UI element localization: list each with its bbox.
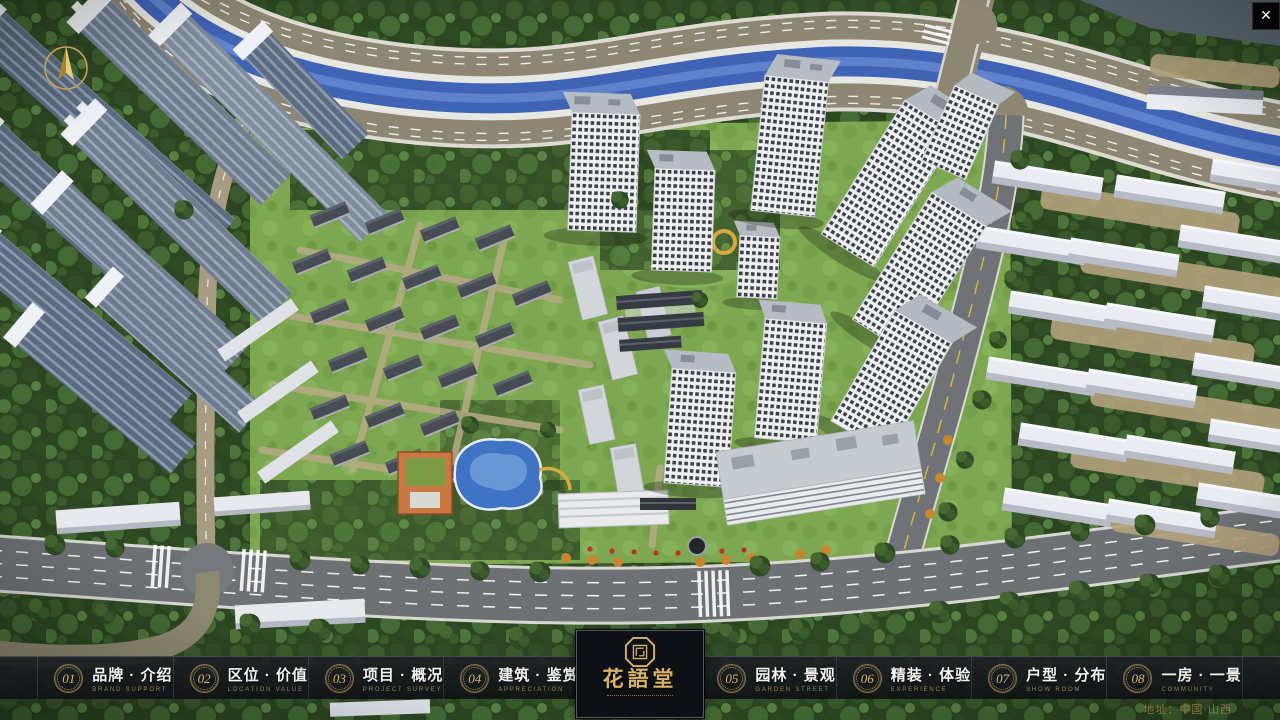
menu-item-project[interactable]: 03 项目 · 概况 PROJECT SURVEY [309, 657, 444, 699]
menu-number-badge: 07 [988, 664, 1017, 693]
logo-seal-icon [624, 636, 656, 668]
menu-item-location[interactable]: 02 区位 · 价值 LOCATION VALUE [174, 657, 309, 699]
menu-item-floorplan[interactable]: 07 户型 · 分布 SHOW ROOM [972, 657, 1107, 699]
menu-number-badge: 01 [54, 664, 83, 693]
menu-label-en: BRAND SUPPORT [92, 687, 172, 693]
menu-number-badge: 02 [190, 664, 219, 693]
sales-presentation-app: ✕ 01 品牌 · 介绍 BRAND SUPPORT 02 区位 · 价值 LO… [0, 0, 1280, 720]
vignette [0, 0, 1280, 720]
menu-label-en: SHOW ROOM [1026, 687, 1106, 693]
menu-label-zh: 项目 · 概况 [363, 664, 443, 685]
menu-item-architecture[interactable]: 04 建筑 · 鉴赏 APPRECIATION [444, 657, 578, 699]
menu-item-interior[interactable]: 06 精装 · 体验 EXPERIENCE [837, 657, 972, 699]
menu-number-badge: 06 [853, 664, 882, 693]
menu-label-en: GARDEN STREET [755, 687, 835, 693]
menu-label-en: LOCATION VALUE [228, 687, 308, 693]
close-button[interactable]: ✕ [1252, 2, 1280, 30]
menu-number-badge: 08 [1123, 664, 1152, 693]
logo-tagline-rule [607, 695, 673, 696]
menu-number-badge: 03 [325, 664, 354, 693]
menu-label-zh: 建筑 · 鉴赏 [498, 664, 578, 685]
menu-label-zh: 园林 · 景观 [755, 664, 835, 685]
menu-item-brand[interactable]: 01 品牌 · 介绍 BRAND SUPPORT [38, 657, 173, 699]
menu-label-en: PROJECT SURVEY [363, 687, 443, 693]
menu-item-views[interactable]: 08 一房 · 一景 COMMUNITY [1107, 657, 1241, 699]
menu-label-zh: 一房 · 一景 [1161, 664, 1241, 685]
menu-label-zh: 精装 · 体验 [891, 664, 971, 685]
bar-spacer-right [1242, 657, 1280, 699]
compass-north-icon [40, 40, 92, 92]
project-name: 花語堂 [603, 668, 678, 691]
masterplan-render [0, 0, 1280, 720]
menu-label-en: COMMUNITY [1161, 687, 1241, 693]
bar-spacer-left [0, 657, 38, 699]
project-address: 地址：中国·山西 [1143, 701, 1232, 717]
project-logo[interactable]: 花語堂 [576, 630, 704, 718]
menu-label-zh: 品牌 · 介绍 [92, 664, 172, 685]
menu-label-zh: 户型 · 分布 [1026, 664, 1106, 685]
menu-item-garden[interactable]: 05 园林 · 景观 GARDEN STREET [701, 657, 836, 699]
menu-label-en: APPRECIATION [498, 687, 578, 693]
menu-label-zh: 区位 · 价值 [228, 664, 308, 685]
menu-number-badge: 04 [460, 664, 489, 693]
menu-label-en: EXPERIENCE [891, 687, 971, 693]
menu-number-badge: 05 [717, 664, 746, 693]
